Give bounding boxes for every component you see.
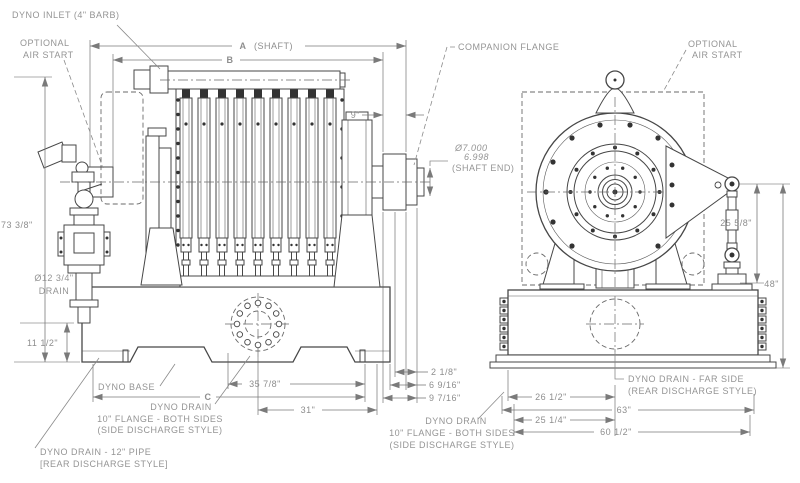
absorber-body [176, 89, 344, 287]
dim-b: B [113, 55, 383, 65]
dim-26-1-2-label: 26 1/2" [535, 392, 567, 402]
dim-total-height: 73 3/8" [1, 77, 45, 362]
dim-6-9-16-label: 6 9/16" [429, 380, 461, 390]
callout-drain-flange-right-2: 10" FLANGE - BOTH SIDES [389, 428, 515, 438]
side-view [38, 66, 432, 362]
callout-drain-pipe-2: [REAR DISCHARGE STYLE] [40, 459, 168, 469]
dim-73-label: 73 3/8" [1, 220, 33, 230]
dim-9-7-16: 9 7/16" [383, 393, 461, 403]
drawing-canvas: A (SHAFT) B 9" 73 3/8" 11 1/2" 2 [0, 0, 800, 483]
dim-25-1-4: 25 1/4" [514, 415, 615, 425]
dyno-dimensional-drawing: A (SHAFT) B 9" 73 3/8" 11 1/2" 2 [0, 0, 800, 483]
dim-31-label: 31" [301, 405, 316, 415]
dim-26-1-2: 26 1/2" [508, 392, 615, 402]
dim-35-7-8-label: 35 7/8" [249, 379, 281, 389]
dim-shaft-end-dia [430, 161, 448, 196]
dim-c: C [93, 392, 365, 402]
callout-shaft-end-2: 6.998 [464, 152, 489, 162]
dim-48-height: 48" [764, 184, 783, 368]
dim-60-1-2-label: 60 1/2" [600, 427, 632, 437]
dim-b-label: B [227, 55, 234, 65]
dim-a-note: (SHAFT) [254, 41, 293, 51]
callout-dyno-inlet: DYNO INLET (4" BARB) [12, 10, 120, 20]
dim-35-7-8: 35 7/8" [228, 379, 365, 389]
inlet-manifold [134, 66, 350, 93]
dim-9-label: 9" [351, 110, 360, 120]
callout-drain-flange-left-3: (SIDE DISCHARGE STYLE) [97, 425, 222, 435]
dyno-base-front [490, 290, 776, 368]
dim-base-height: 11 1/2" [27, 323, 67, 362]
dim-25-1-4-label: 25 1/4" [535, 415, 567, 425]
callout-companion-flange: COMPANION FLANGE [458, 42, 559, 52]
callout-drain-pipe-1: DYNO DRAIN - 12" PIPE [40, 447, 151, 457]
shaft-and-companion-flange [334, 112, 424, 287]
callout-air-start-left-1: OPTIONAL [20, 38, 70, 48]
dim-6-9-16: 6 9/16" [390, 380, 461, 390]
dim-2-1-8-label: 2 1/8" [431, 367, 457, 377]
dim-a-label: A [240, 41, 247, 51]
callout-air-start-left-2: AIR START [23, 50, 74, 60]
dim-9-7-16-label: 9 7/16" [429, 393, 461, 403]
dim-25-5-8-label: 25 5/8" [720, 218, 752, 228]
callout-drain-far-2: (REAR DISCHARGE STYLE) [628, 386, 757, 396]
dim-60-1-2: 60 1/2" [514, 427, 750, 437]
dim-48-label: 48" [764, 279, 779, 289]
callout-air-start-right-2: AIR START [692, 50, 743, 60]
callout-drain-flange-left-2: 10" FLANGE - BOTH SIDES [97, 414, 223, 424]
callout-drain-dia-2: DRAIN [39, 286, 70, 296]
callout-air-start-right-1: OPTIONAL [688, 39, 738, 49]
callout-shaft-end-3: (SHAFT END) [452, 163, 514, 173]
callout-drain-flange-right-3: (SIDE DISCHARGE STYLE) [389, 440, 514, 450]
dim-2-1-8: 2 1/8" [395, 367, 457, 377]
dim-11-label: 11 1/2" [27, 338, 58, 348]
callout-drain-dia-1: Ø12 3/4" [34, 273, 73, 283]
callout-drain-far-1: DYNO DRAIN - FAR SIDE [628, 374, 744, 384]
callout-drain-flange-right-1: DYNO DRAIN [425, 416, 487, 426]
dim-c-label: C [205, 392, 212, 402]
callout-dyno-base: DYNO BASE [98, 382, 155, 392]
dim-31: 31" [258, 405, 377, 415]
callout-drain-flange-left-1: DYNO DRAIN [150, 402, 212, 412]
dim-63: 63" [502, 405, 754, 415]
dim-63-label: 63" [617, 405, 632, 415]
